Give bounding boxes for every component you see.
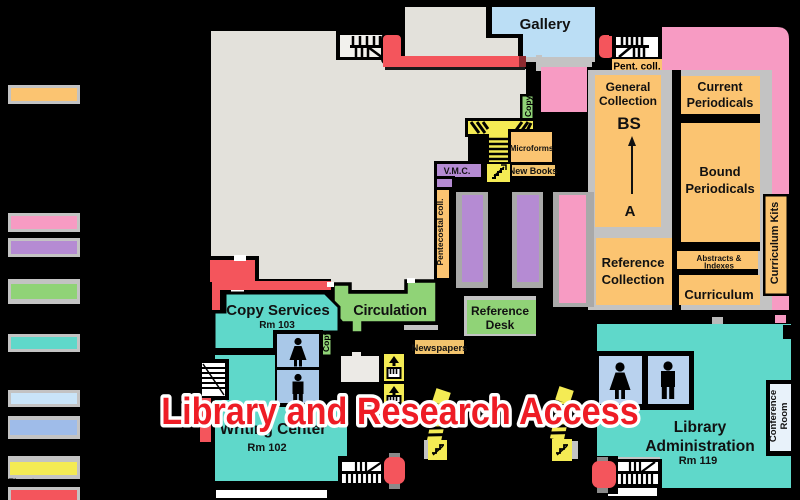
svg-text:Rm 103: Rm 103 [259, 320, 295, 331]
svg-text:Pentecostal coll.: Pentecostal coll. [435, 198, 445, 265]
svg-text:Collection: Collection [602, 272, 665, 287]
svg-text:General Collections: General Collections [8, 75, 93, 85]
svg-text:Curriculum Kits: Curriculum Kits [769, 202, 781, 285]
svg-text:General: General [606, 80, 651, 94]
svg-text:Reference: Reference [602, 255, 665, 270]
svg-text:Gallery: Gallery [8, 380, 39, 390]
svg-text:Desk: Desk [486, 318, 515, 332]
svg-text:V.M.C.: V.M.C. [444, 166, 471, 176]
svg-text:A: A [625, 203, 636, 220]
svg-text:Bound: Bound [699, 164, 740, 179]
svg-text:Copy: Copy [523, 95, 533, 117]
svg-text:Room: Room [779, 403, 790, 430]
svg-text:Newspapers: Newspapers [412, 343, 468, 354]
svg-text:Elevators: Elevators [8, 477, 49, 487]
svg-text:Gallery: Gallery [520, 16, 572, 33]
svg-text:Circulation: Circulation [353, 303, 427, 319]
svg-text:Periodicals: Periodicals [687, 96, 754, 110]
svg-text:Rm 102: Rm 102 [247, 442, 286, 454]
svg-text:Copy Services: Copy Services [226, 302, 329, 319]
svg-text:Current: Current [697, 80, 743, 94]
svg-text:Library: Library [674, 419, 727, 436]
svg-text:Collection: Collection [599, 94, 657, 108]
svg-text:Rm 119: Rm 119 [679, 455, 718, 467]
svg-text:BS: BS [617, 114, 641, 133]
svg-text:Restrooms: Restrooms [8, 406, 55, 416]
svg-text:Reference: Reference [471, 304, 529, 318]
svg-text:Library and Research Access: Library and Research Access [161, 389, 638, 432]
svg-text:Periodicals: Periodicals [685, 181, 754, 196]
svg-text:Microforms: Microforms [510, 144, 554, 153]
svg-text:New Books: New Books [509, 166, 558, 176]
svg-text:Curriculum: Curriculum [684, 287, 753, 302]
svg-text:Administration: Administration [645, 438, 754, 455]
svg-text:Conference: Conference [768, 390, 779, 442]
